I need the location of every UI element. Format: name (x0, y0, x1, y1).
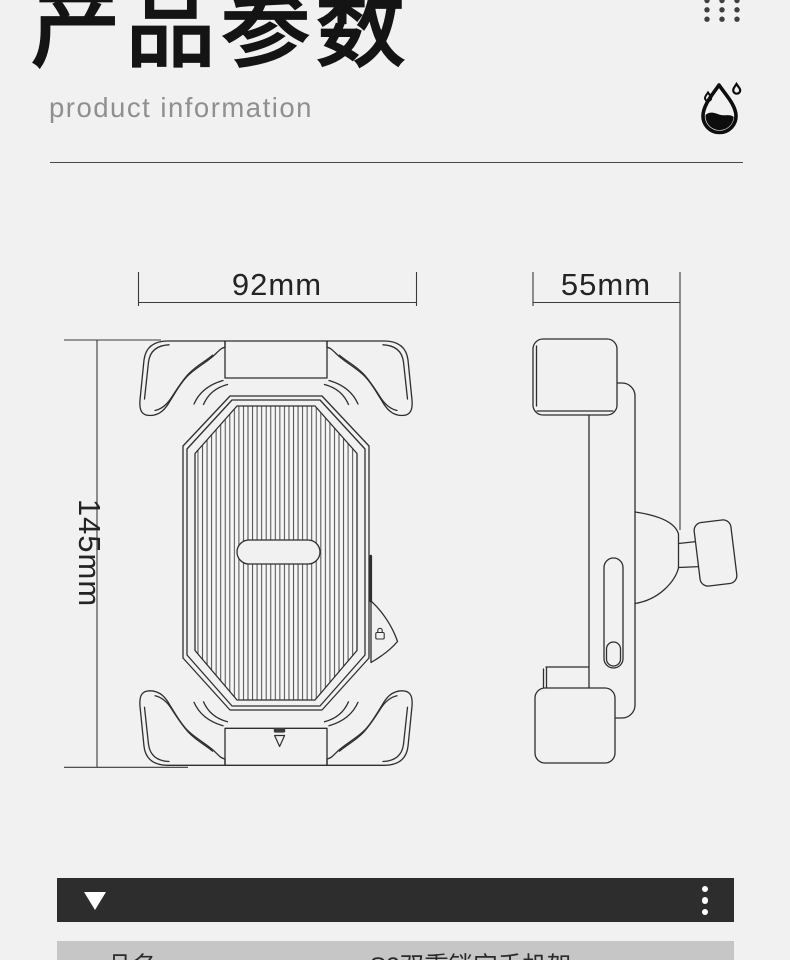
spec-table-row: 品名 S2双重锁定手机架 (57, 941, 734, 960)
ball-joint-knob (693, 519, 738, 587)
lock-icon (376, 628, 384, 639)
product-parameters-page: 产品参数 product information 92mm (0, 0, 790, 960)
front-height-dimension-label: 145mm (72, 499, 107, 607)
spec-row-label: 品名 (57, 941, 207, 960)
side-width-dimension-label: 55mm (561, 267, 651, 302)
dimension-lines (64, 272, 680, 767)
spec-section-bar (57, 878, 734, 923)
waterproof-drop-icon (0, 0, 790, 150)
triangle-down-icon (84, 892, 106, 910)
front-width-dimension-label: 92mm (232, 267, 322, 302)
kebab-dots-icon (702, 886, 709, 916)
side-view-drawing (533, 339, 738, 763)
release-button-triangle (275, 736, 285, 747)
divider-line (50, 162, 743, 163)
release-button-mark (274, 728, 285, 733)
spec-row-value: S2双重锁定手机架 (207, 941, 734, 960)
front-view-drawing (140, 341, 412, 765)
